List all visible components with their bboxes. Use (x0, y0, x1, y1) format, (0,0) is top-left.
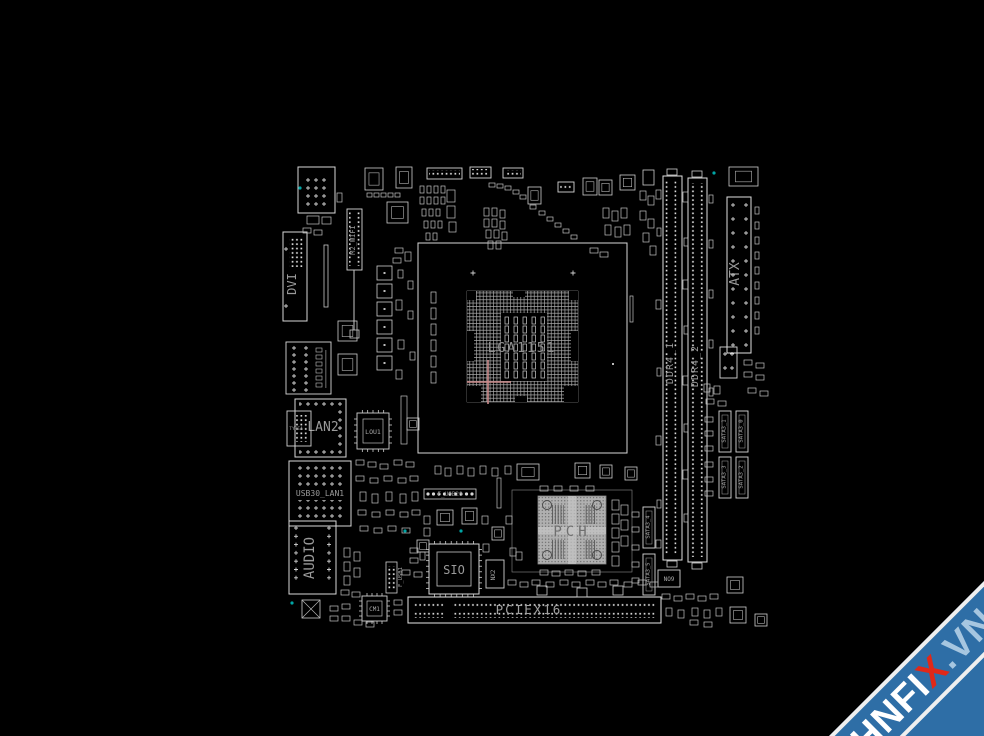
decor (584, 505, 596, 524)
decor (294, 500, 346, 520)
decor (384, 272, 386, 274)
decor (384, 362, 386, 364)
decor (465, 492, 468, 495)
cm1-label: CM1 (369, 606, 380, 613)
decor (294, 466, 346, 488)
decor (299, 402, 343, 410)
decor (467, 386, 481, 402)
decor (384, 308, 386, 310)
lga1151-label: LGA1151 (488, 341, 557, 356)
decor (403, 529, 406, 532)
decor (338, 410, 346, 446)
decor (472, 169, 489, 176)
ddr4-2-label: DDR4_2 (690, 345, 701, 387)
sata3-3-label: SATA3_3 (722, 465, 728, 488)
boardview-viewport: LGA1151DDR4_1DDR4_2ATXPCIEX16PCHSIONX2CM… (0, 0, 984, 736)
sata3-2-label: SATA3_2 (739, 465, 745, 488)
decor (467, 291, 476, 300)
decor (560, 184, 572, 190)
decor (298, 186, 301, 189)
lan2-label: LAN2 (307, 420, 338, 435)
decor (290, 601, 293, 604)
decor (384, 290, 386, 292)
f-usb20-label: F_USB20 (437, 491, 463, 498)
decor (552, 540, 564, 559)
decor (384, 326, 386, 328)
decor (584, 540, 596, 559)
decor (515, 396, 527, 402)
boardview-canvas[interactable]: LGA1151DDR4_1DDR4_2ATXPCIEX16PCHSIONX2CM… (0, 0, 984, 736)
decor (459, 529, 462, 532)
decor (289, 237, 304, 267)
decor (552, 505, 564, 524)
sata3-0-label: SATA3_0 (739, 419, 745, 442)
decor (384, 344, 386, 346)
decor (429, 170, 460, 177)
dvi-label: DVI (285, 273, 299, 295)
decor (513, 291, 525, 297)
decor (426, 492, 429, 495)
decor (612, 363, 614, 365)
lou1-label: LOU1 (365, 428, 381, 436)
sio-label: SIO (443, 563, 465, 577)
sata3-4-label: SATA3_4 (646, 515, 652, 539)
typea-label: TYPEA (289, 426, 303, 432)
no9-label: NO9 (664, 576, 675, 583)
decor (444, 599, 452, 621)
usb30-lan1-connector[interactable]: USB30_LAN1 (289, 461, 351, 526)
decor (564, 386, 578, 402)
decor (388, 566, 395, 590)
decor (303, 174, 330, 206)
pciex16-label: PCIEX16 (496, 602, 563, 617)
ddr4-1-label: DDR4_1 (665, 342, 676, 384)
decor (712, 171, 715, 174)
decor (299, 446, 343, 454)
decor (467, 331, 474, 361)
decor (432, 492, 435, 495)
sata3-1-label: SATA3_1 (722, 419, 728, 442)
decor (569, 291, 578, 300)
decor (470, 492, 473, 495)
audio-label: AUDIO (302, 537, 318, 579)
decor (325, 350, 327, 388)
m2-wifi-label: M2_WIFI (349, 225, 357, 255)
decor (505, 170, 521, 176)
usb30-lan1-label: USB30_LAN1 (296, 489, 344, 498)
nx2-label: NX2 (490, 569, 497, 580)
pch-label: PCH (553, 524, 590, 540)
decor (571, 331, 578, 361)
atx-label: ATX (728, 262, 743, 286)
